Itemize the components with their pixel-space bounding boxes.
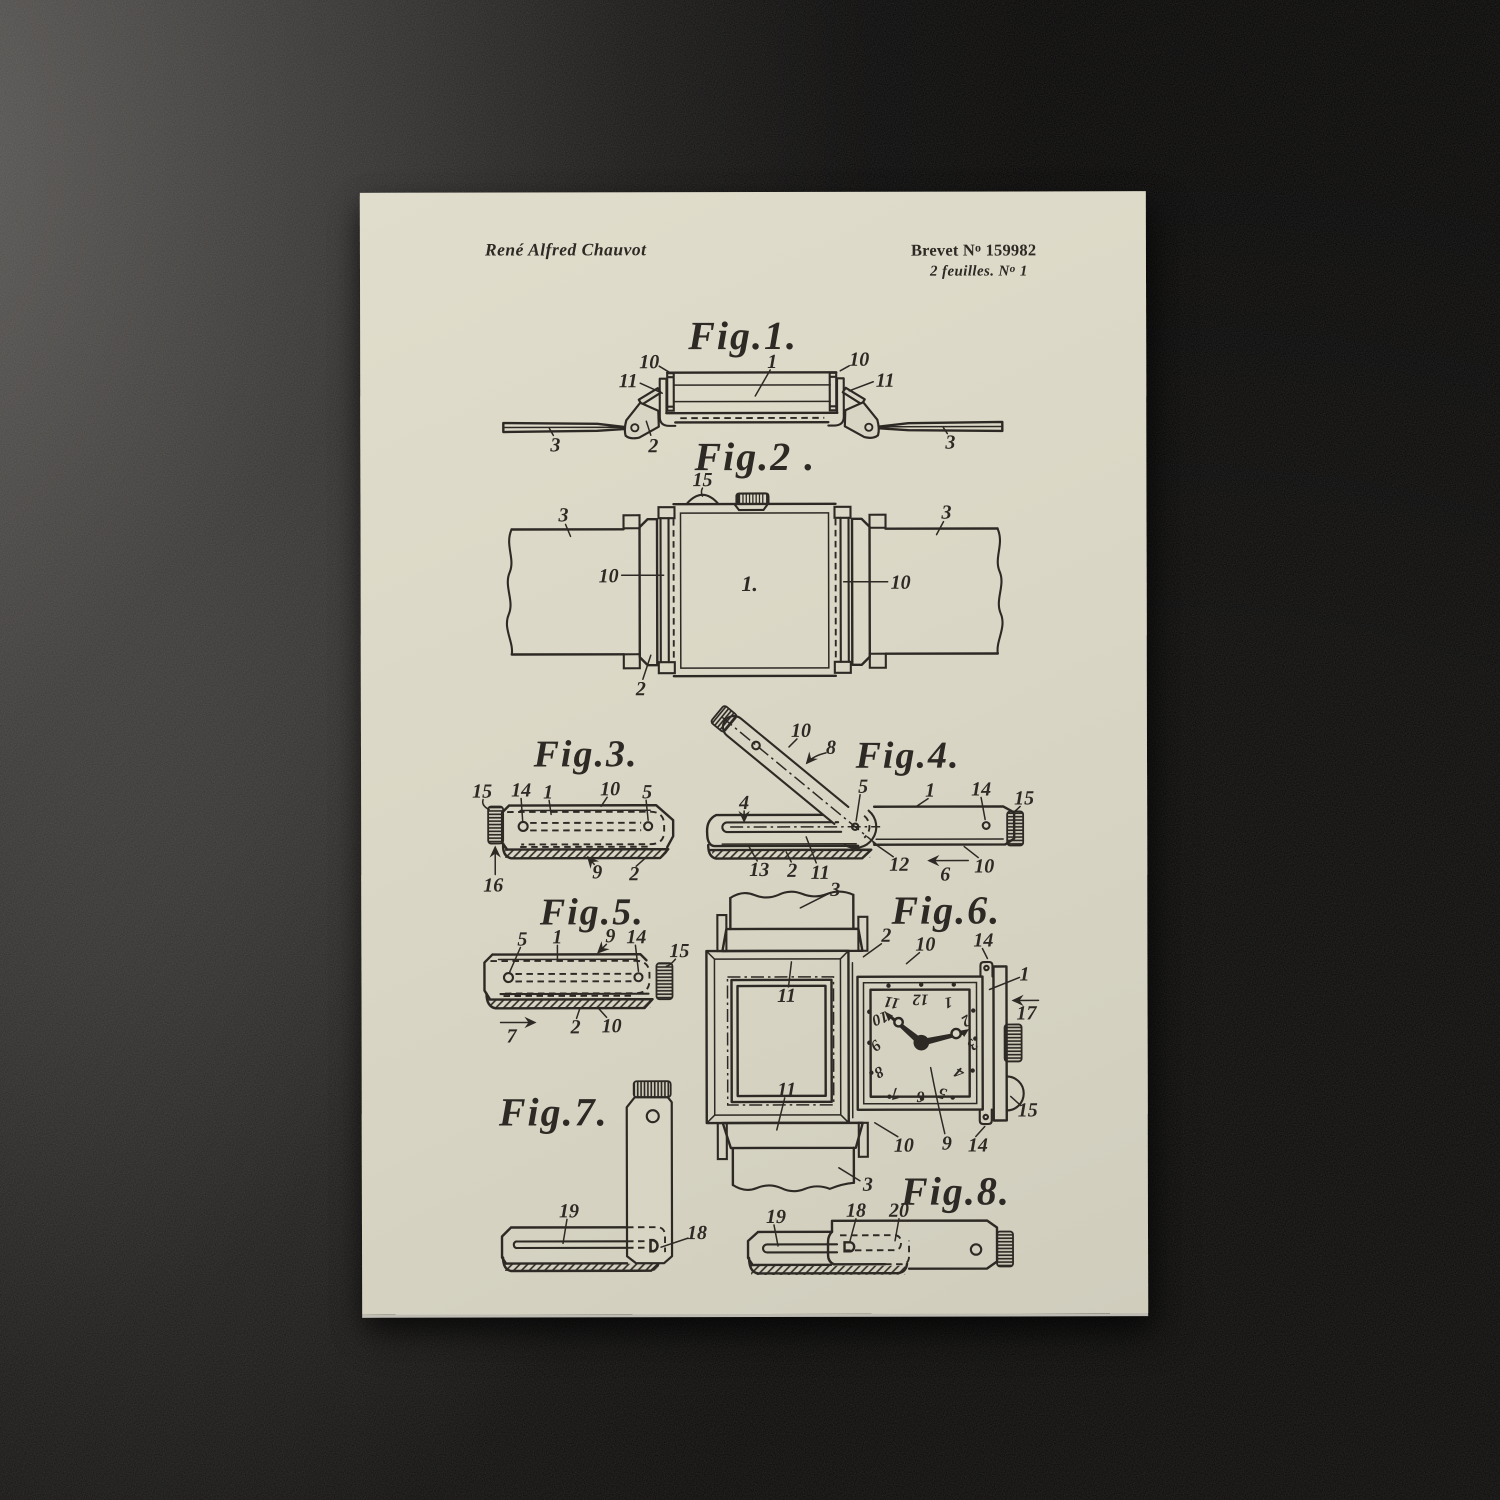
svg-text:1: 1 bbox=[767, 351, 777, 373]
svg-text:2: 2 bbox=[628, 863, 639, 885]
svg-text:14: 14 bbox=[626, 926, 646, 948]
svg-text:7: 7 bbox=[888, 1084, 901, 1103]
svg-text:3: 3 bbox=[944, 432, 955, 454]
svg-text:15: 15 bbox=[669, 940, 689, 962]
svg-text:3: 3 bbox=[557, 504, 568, 526]
svg-text:4: 4 bbox=[952, 1063, 968, 1082]
svg-text:5: 5 bbox=[642, 781, 652, 803]
svg-text:3: 3 bbox=[862, 1174, 873, 1196]
svg-text:2: 2 bbox=[958, 1011, 974, 1030]
svg-text:Fig.3.: Fig.3. bbox=[533, 733, 639, 775]
svg-text:15: 15 bbox=[1014, 787, 1034, 809]
svg-text:11: 11 bbox=[619, 370, 638, 392]
svg-text:Fig.7.: Fig.7. bbox=[498, 1089, 609, 1134]
svg-text:1.: 1. bbox=[741, 571, 758, 596]
svg-text:19: 19 bbox=[766, 1206, 786, 1228]
svg-text:10: 10 bbox=[974, 855, 994, 877]
svg-text:2 feuilles. No 1: 2 feuilles. No 1 bbox=[929, 263, 1028, 280]
svg-text:10: 10 bbox=[600, 778, 620, 800]
svg-text:12: 12 bbox=[889, 854, 909, 876]
svg-text:11: 11 bbox=[777, 1079, 796, 1101]
svg-text:15: 15 bbox=[1018, 1099, 1038, 1121]
svg-text:2: 2 bbox=[570, 1016, 581, 1038]
svg-text:8: 8 bbox=[871, 1062, 886, 1081]
svg-text:5: 5 bbox=[517, 928, 527, 950]
svg-text:10: 10 bbox=[602, 1015, 622, 1037]
svg-text:10: 10 bbox=[791, 720, 811, 742]
svg-text:1: 1 bbox=[925, 780, 935, 802]
svg-text:6: 6 bbox=[940, 864, 950, 886]
svg-text:2: 2 bbox=[647, 435, 658, 457]
svg-text:18: 18 bbox=[687, 1222, 707, 1244]
svg-text:7: 7 bbox=[507, 1025, 518, 1047]
svg-text:12: 12 bbox=[912, 991, 928, 1008]
svg-text:10: 10 bbox=[915, 934, 935, 956]
svg-text:10: 10 bbox=[599, 565, 619, 587]
svg-text:Fig.6.: Fig.6. bbox=[890, 887, 1001, 932]
svg-text:11: 11 bbox=[811, 862, 830, 884]
svg-text:14: 14 bbox=[973, 929, 993, 951]
svg-text:15: 15 bbox=[472, 781, 492, 803]
svg-text:3: 3 bbox=[940, 502, 951, 524]
svg-text:19: 19 bbox=[559, 1200, 579, 1222]
svg-text:Brevet No 159982: Brevet No 159982 bbox=[911, 240, 1036, 259]
svg-text:3: 3 bbox=[963, 1035, 982, 1053]
svg-text:13: 13 bbox=[749, 859, 769, 881]
svg-text:6: 6 bbox=[917, 1088, 925, 1105]
svg-text:2: 2 bbox=[786, 860, 797, 882]
svg-text:10: 10 bbox=[639, 351, 659, 373]
svg-text:9: 9 bbox=[942, 1133, 952, 1155]
svg-text:Fig.1.: Fig.1. bbox=[687, 313, 798, 358]
svg-text:1: 1 bbox=[943, 993, 954, 1011]
svg-text:Fig.8.: Fig.8. bbox=[900, 1168, 1011, 1213]
svg-text:14: 14 bbox=[968, 1135, 988, 1157]
svg-text:8: 8 bbox=[826, 737, 836, 759]
svg-text:17: 17 bbox=[1017, 1002, 1038, 1024]
svg-text:René Alfred Chauvot: René Alfred Chauvot bbox=[484, 239, 647, 259]
svg-text:10: 10 bbox=[891, 572, 911, 594]
svg-text:Fig.4.: Fig.4. bbox=[855, 735, 961, 777]
svg-text:11: 11 bbox=[777, 985, 796, 1007]
svg-text:2: 2 bbox=[635, 678, 646, 700]
svg-text:10: 10 bbox=[849, 349, 869, 371]
svg-text:10: 10 bbox=[894, 1135, 914, 1157]
svg-text:3: 3 bbox=[549, 434, 560, 456]
svg-text:1: 1 bbox=[1019, 963, 1029, 985]
svg-text:3: 3 bbox=[829, 879, 840, 901]
svg-text:16: 16 bbox=[483, 875, 503, 897]
svg-text:1: 1 bbox=[543, 781, 553, 803]
svg-text:5: 5 bbox=[936, 1084, 948, 1102]
svg-text:11: 11 bbox=[876, 370, 895, 392]
